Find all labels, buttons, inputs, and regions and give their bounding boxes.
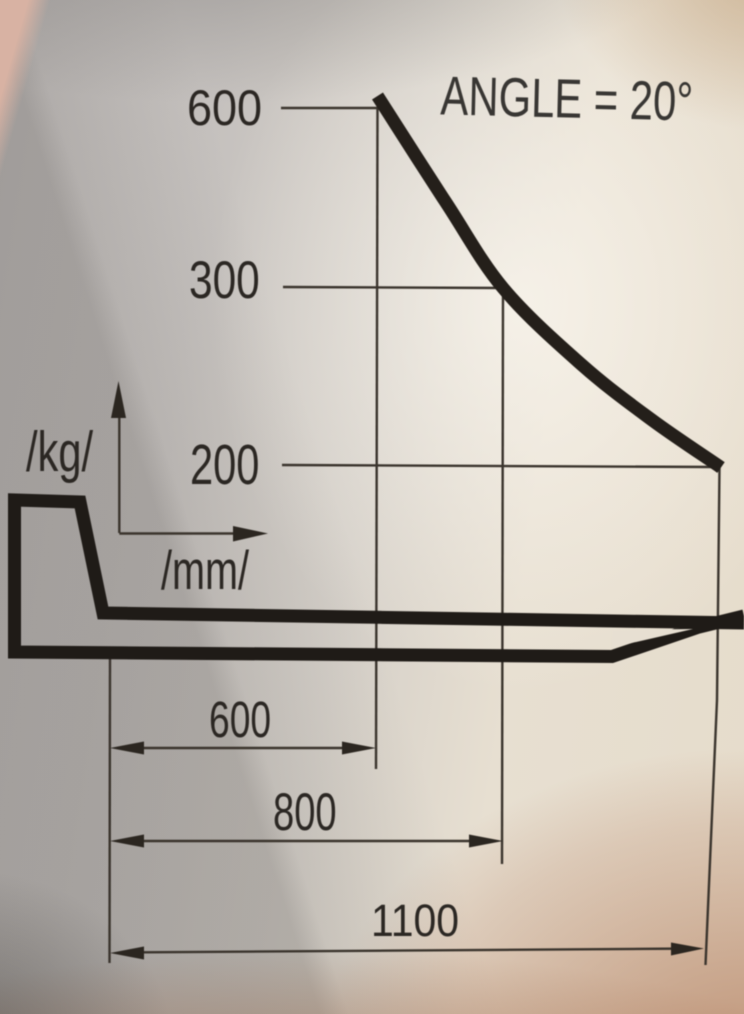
svg-text:/kg/: /kg/	[26, 420, 93, 484]
svg-text:1100: 1100	[371, 896, 459, 946]
svg-text:600: 600	[209, 692, 271, 748]
svg-text:300: 300	[189, 252, 260, 311]
svg-text:ANGLE = 20°: ANGLE = 20°	[440, 66, 694, 133]
svg-text:200: 200	[190, 433, 259, 497]
svg-text:800: 800	[273, 782, 337, 842]
svg-text:600: 600	[187, 81, 262, 137]
svg-text:/mm/: /mm/	[161, 541, 250, 602]
